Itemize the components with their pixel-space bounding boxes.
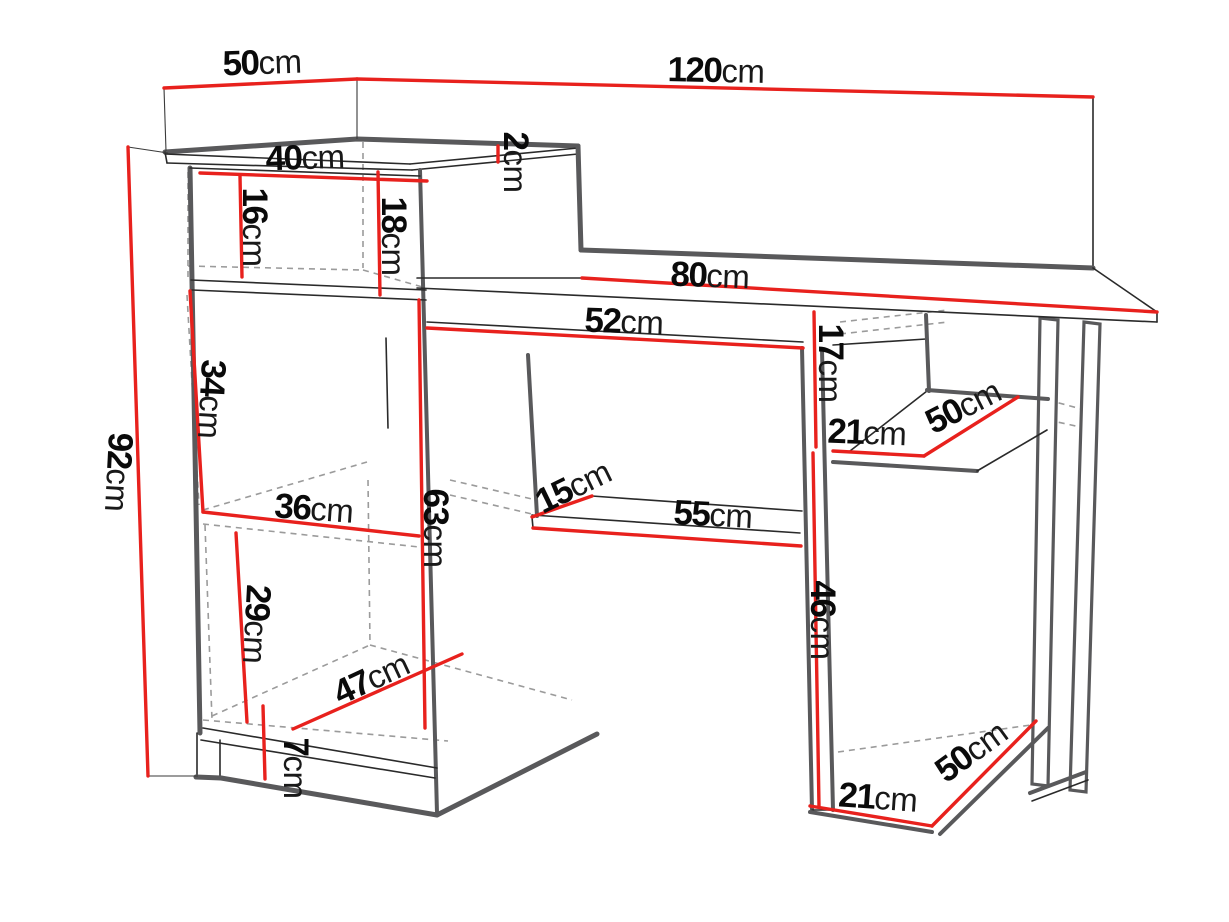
label-bottom-shelf-depth: 50cm <box>928 712 1015 790</box>
label-lower-inner-height: 63cm <box>417 489 456 568</box>
right-front-post <box>1070 322 1100 792</box>
dimension-lines <box>128 79 1157 826</box>
label-lower-section-height: 29cm <box>235 584 278 665</box>
dim-line-plinth-height <box>263 706 265 779</box>
label-hutch-inner-height: 16cm <box>236 188 275 267</box>
label-tray-width: 55cm <box>673 492 754 535</box>
label-desktop-width: 80cm <box>670 254 750 296</box>
label-top-depth: 50cm <box>222 41 302 83</box>
label-total-height: 92cm <box>97 432 140 513</box>
label-tray-depth: 15cm <box>529 451 617 521</box>
label-upper-shelf-width: 21cm <box>827 411 907 453</box>
label-middle-shelf-width: 36cm <box>273 486 354 530</box>
technical-drawing-page: 50cm 120cm 40cm 2cm 16cm 18cm 80cm 52cm … <box>0 0 1229 922</box>
hidden-edges <box>187 142 1085 752</box>
label-opening-width: 52cm <box>584 300 664 342</box>
label-plinth-height: 7cm <box>277 738 316 799</box>
label-bottom-diagonal: 47cm <box>327 644 415 713</box>
label-total-width: 120cm <box>667 50 765 91</box>
right-rear-post <box>1032 318 1058 786</box>
label-bottom-shelf-width: 21cm <box>837 775 918 819</box>
label-right-top-height: 17cm <box>812 324 851 403</box>
label-board-thickness: 2cm <box>497 132 536 193</box>
dimension-labels: 50cm 120cm 40cm 2cm 16cm 18cm 80cm 52cm … <box>97 41 1014 819</box>
right-frame <box>1030 318 1100 801</box>
door-handle <box>386 338 388 428</box>
desk-dimension-diagram: 50cm 120cm 40cm 2cm 16cm 18cm 80cm 52cm … <box>0 0 1229 922</box>
label-hutch-width: 40cm <box>265 136 345 178</box>
dim-line-desktop-width <box>582 278 1157 312</box>
dim-line-upper-shelf-width <box>833 451 924 456</box>
label-door-section-height: 34cm <box>190 359 233 440</box>
label-hutch-outer-height: 18cm <box>375 197 414 276</box>
label-right-lower-height: 46cm <box>804 581 843 660</box>
